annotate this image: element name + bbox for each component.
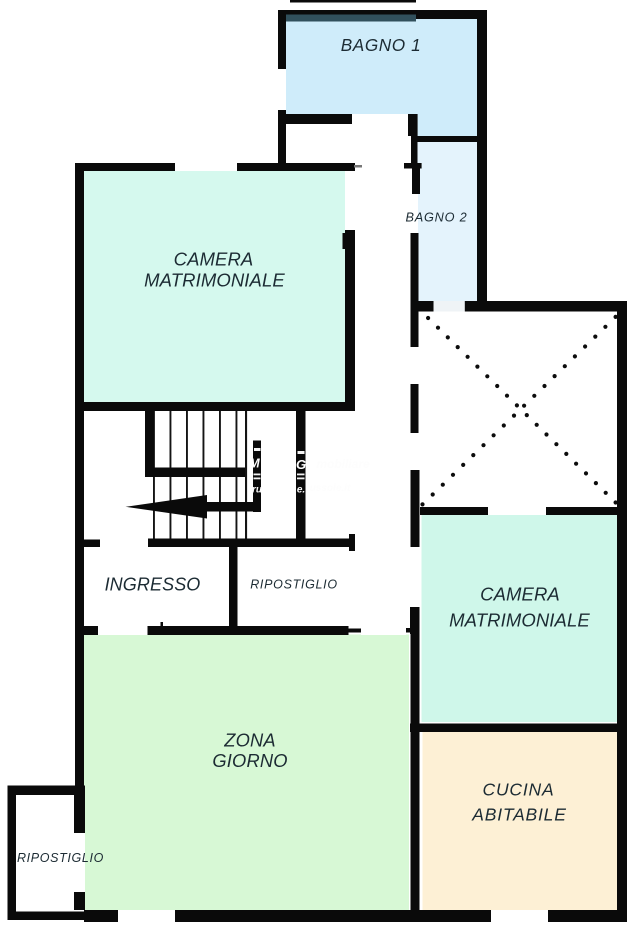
svg-text:CAMERA: CAMERA: [174, 249, 254, 270]
svg-text:MATRIMONIALE: MATRIMONIALE: [449, 610, 590, 631]
svg-text:CUCINA: CUCINA: [483, 780, 555, 800]
svg-text:ABITABILE: ABITABILE: [471, 805, 566, 825]
svg-text:ussole.it: ussole.it: [310, 483, 351, 494]
svg-text:M: M: [249, 457, 260, 471]
svg-text:BAGNO 2: BAGNO 2: [405, 211, 467, 225]
svg-text:RIPOSTIGLIO: RIPOSTIGLIO: [250, 578, 338, 592]
svg-text:ru: ru: [252, 485, 262, 496]
svg-text:e.: e.: [297, 485, 305, 496]
svg-text:CAMERA: CAMERA: [480, 584, 560, 605]
svg-text:INGRESSO: INGRESSO: [105, 575, 201, 595]
svg-text:BAGNO 1: BAGNO 1: [341, 35, 422, 55]
svg-text:RIPOSTIGLIO: RIPOSTIGLIO: [17, 851, 104, 865]
svg-text:MATRIMONIALE: MATRIMONIALE: [144, 270, 285, 291]
svg-text:mobiliare: mobiliare: [316, 457, 370, 471]
svg-text:G: G: [296, 457, 306, 472]
svg-text:GIORNO: GIORNO: [212, 750, 287, 771]
svg-text:ZONA: ZONA: [223, 730, 276, 751]
